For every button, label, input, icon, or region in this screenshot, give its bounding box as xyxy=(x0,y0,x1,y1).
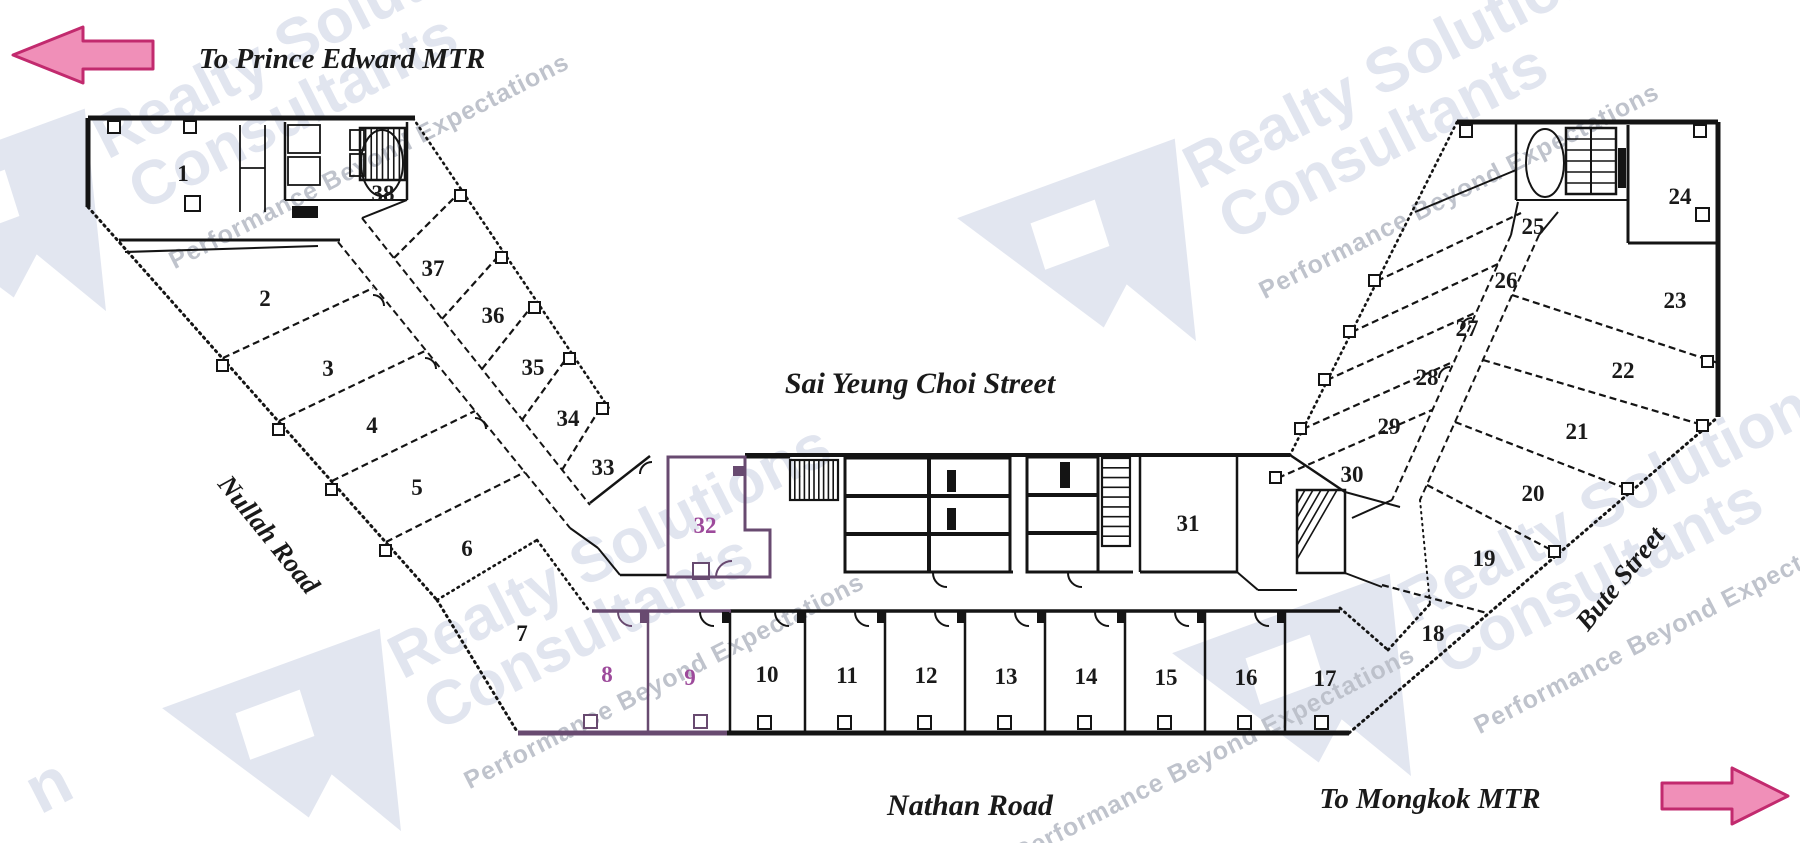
watermark-letter-fragment: n xyxy=(12,742,84,829)
unit-label-35: 35 xyxy=(522,355,545,380)
unit-label-12: 12 xyxy=(915,663,938,688)
unit-label-4: 4 xyxy=(366,413,378,438)
unit-label-24: 24 xyxy=(1669,184,1693,209)
label-to-prince-edward-mtr: To Prince Edward MTR xyxy=(199,43,486,75)
unit-label-5: 5 xyxy=(411,475,423,500)
unit-label-38: 38 xyxy=(372,181,395,206)
unit-label-9: 9 xyxy=(684,665,696,690)
unit-label-26: 26 xyxy=(1495,268,1518,293)
unit-label-6: 6 xyxy=(461,536,473,561)
unit-label-11: 11 xyxy=(836,663,858,688)
unit-label-29: 29 xyxy=(1378,414,1401,439)
unit-label-22: 22 xyxy=(1612,358,1635,383)
unit-label-17: 17 xyxy=(1314,666,1337,691)
unit-label-23: 23 xyxy=(1664,288,1687,313)
watermark-instance-top-center: Realty Solutions Consultants Performance… xyxy=(957,0,1691,412)
unit-label-10: 10 xyxy=(756,662,779,687)
unit-label-19: 19 xyxy=(1473,546,1496,571)
unit-label-16: 16 xyxy=(1235,665,1258,690)
watermark-instance-bottom-right: Realty Solutions Consultants Performance… xyxy=(1172,330,1800,843)
unit-label-8: 8 xyxy=(601,662,613,687)
watermark-layer: Realty Solutions Consultants Performance… xyxy=(0,0,1800,843)
floorplan-page: Realty Solutions Consultants Performance… xyxy=(0,0,1800,843)
unit-label-7: 7 xyxy=(516,621,528,646)
unit-label-31: 31 xyxy=(1177,511,1200,536)
label-nullah-road: Nullah Road xyxy=(212,468,326,599)
unit-label-2: 2 xyxy=(259,286,271,311)
label-sai-yeung-choi-street: Sai Yeung Choi Street xyxy=(785,367,1057,400)
unit-label-36: 36 xyxy=(482,303,505,328)
unit-label-30: 30 xyxy=(1341,462,1364,487)
unit-label-27: 27 xyxy=(1456,316,1479,341)
unit-label-37: 37 xyxy=(422,256,445,281)
unit-label-21: 21 xyxy=(1566,419,1589,444)
unit-label-34: 34 xyxy=(557,406,581,431)
unit-label-32: 32 xyxy=(694,513,717,538)
unit-label-3: 3 xyxy=(322,356,334,381)
arrow-right-icon xyxy=(1662,768,1788,824)
watermark-fragment: n xyxy=(12,742,84,829)
unit-label-25: 25 xyxy=(1522,214,1545,239)
label-nathan-road: Nathan Road xyxy=(886,789,1054,822)
unit-label-15: 15 xyxy=(1155,665,1178,690)
floorplan-svg: Realty Solutions Consultants Performance… xyxy=(0,0,1800,843)
unit-label-14: 14 xyxy=(1075,664,1099,689)
arrow-left-icon xyxy=(13,27,153,83)
unit-label-33: 33 xyxy=(592,455,615,480)
unit-label-18: 18 xyxy=(1422,621,1445,646)
unit-label-1: 1 xyxy=(177,161,189,186)
unit-label-20: 20 xyxy=(1522,481,1545,506)
unit-label-13: 13 xyxy=(995,664,1018,689)
label-to-mongkok-mtr: To Mongkok MTR xyxy=(1319,783,1540,815)
unit-label-28: 28 xyxy=(1416,365,1439,390)
